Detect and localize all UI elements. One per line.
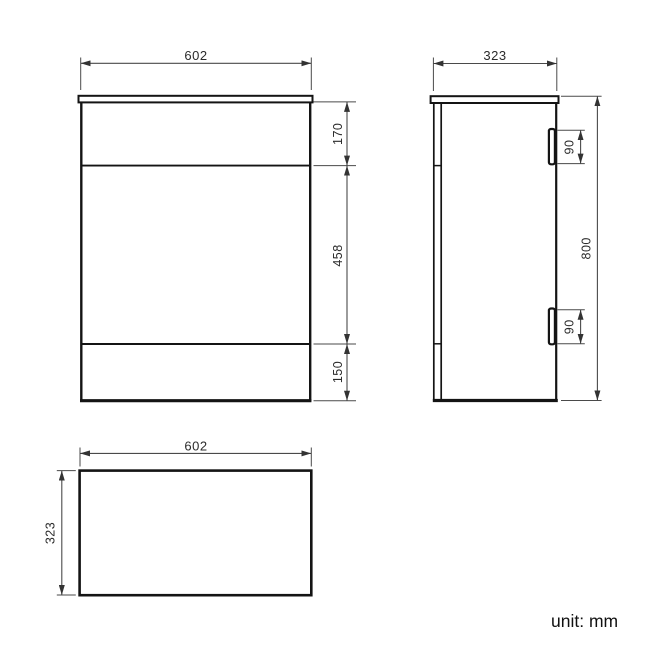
front-bottom-section-value: 150 <box>331 361 345 383</box>
hinge-top-value: 90 <box>563 140 577 155</box>
side-depth-dimension: 323 <box>433 48 556 91</box>
hinge-top <box>549 129 555 164</box>
technical-drawing: 602 170 458 150 <box>0 0 650 650</box>
hinge-top-dimension: 90 <box>558 130 585 163</box>
side-depth-value: 323 <box>483 48 506 63</box>
front-view: 602 170 458 150 <box>79 48 357 402</box>
front-top-section-value: 170 <box>331 123 345 145</box>
side-height-value: 800 <box>580 237 594 259</box>
front-middle-section-value: 458 <box>331 244 345 266</box>
hinge-bottom-dimension: 90 <box>558 310 585 344</box>
plan-width-value: 602 <box>184 439 207 454</box>
front-width-dimension: 602 <box>81 48 312 90</box>
front-height-dimensions: 170 458 150 <box>314 102 357 401</box>
front-countertop <box>79 96 313 103</box>
plan-view: 602 323 <box>44 439 312 596</box>
plan-depth-value: 323 <box>44 522 58 544</box>
drawing-canvas: 602 170 458 150 <box>0 0 650 650</box>
hinge-bottom-value: 90 <box>563 319 577 334</box>
front-width-value: 602 <box>184 48 207 63</box>
plan-depth-dimension: 323 <box>44 471 76 595</box>
side-countertop <box>431 96 559 103</box>
hinge-bottom <box>549 309 555 345</box>
side-view: 323 90 <box>431 48 602 401</box>
unit-label: unit: mm <box>551 611 618 632</box>
plan-width-dimension: 602 <box>80 439 311 467</box>
plan-outline <box>80 471 312 596</box>
